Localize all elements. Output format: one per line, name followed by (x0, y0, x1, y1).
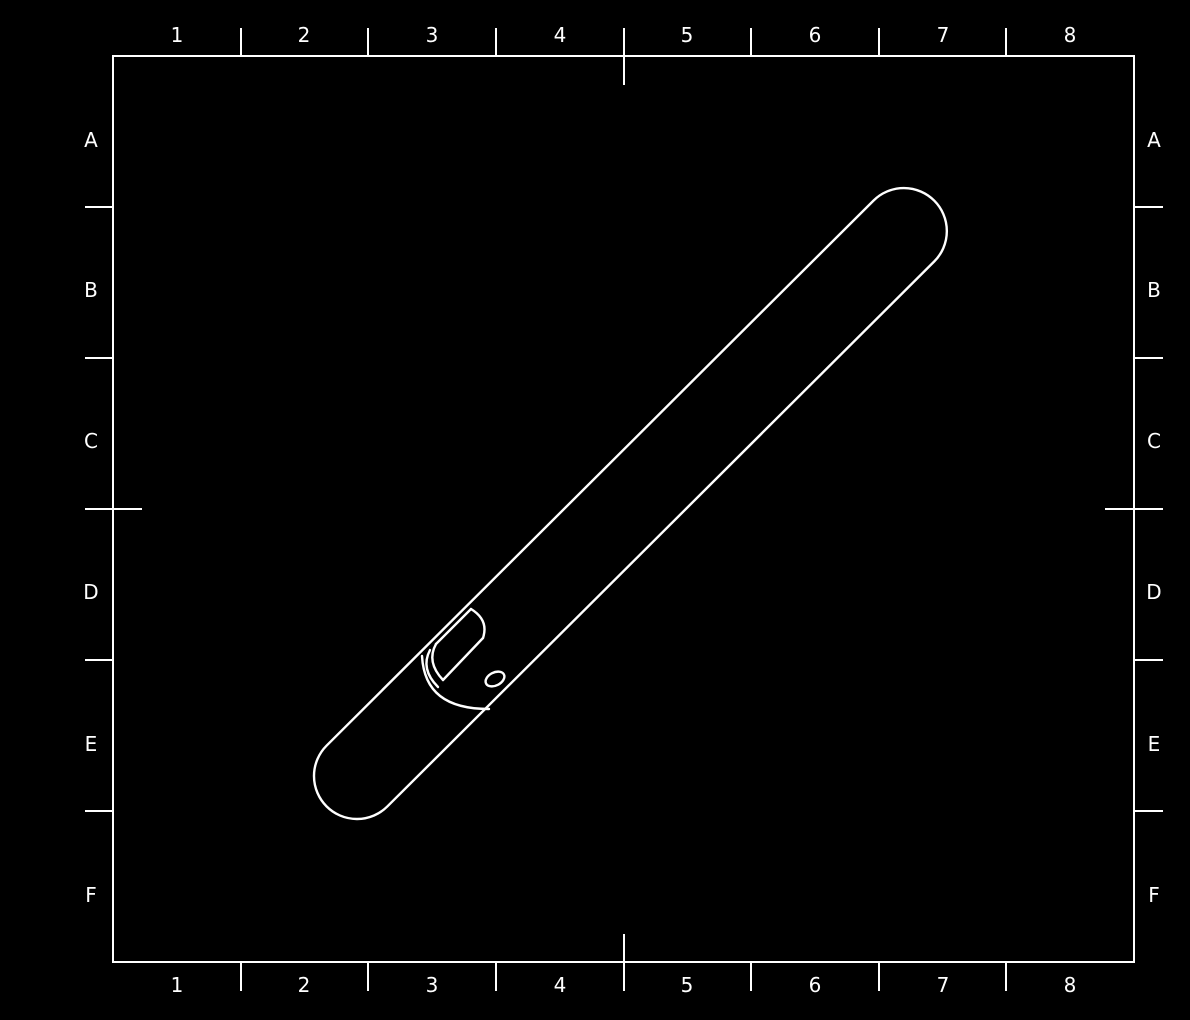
top-column-label: 6 (809, 23, 822, 47)
bottom-column-label: 5 (681, 973, 694, 997)
top-column-label: 7 (937, 23, 950, 47)
right-row-label: B (1147, 278, 1161, 302)
top-column-label: 2 (298, 23, 311, 47)
bottom-column-label: 3 (426, 973, 439, 997)
slot-end-inner-arc (432, 644, 443, 680)
right-row-label: C (1147, 429, 1161, 453)
left-row-label: A (84, 128, 98, 152)
left-row-label: D (83, 580, 98, 604)
zone-labels: 1 2 3 4 5 6 7 8 1 2 3 4 5 6 7 8 A B C D … (83, 23, 1161, 997)
hole (483, 669, 507, 690)
bottom-column-label: 1 (171, 973, 184, 997)
bottom-column-label: 6 (809, 973, 822, 997)
part-wireframe (296, 170, 964, 837)
top-column-label: 5 (681, 23, 694, 47)
left-row-label: C (84, 429, 98, 453)
top-column-label: 3 (426, 23, 439, 47)
cad-drawing-viewport[interactable]: 1 2 3 4 5 6 7 8 1 2 3 4 5 6 7 8 A B C D … (0, 0, 1190, 1020)
top-column-label: 8 (1064, 23, 1077, 47)
bottom-column-label: 7 (937, 973, 950, 997)
zone-tick-marks (85, 28, 1163, 991)
right-row-label: F (1148, 883, 1160, 907)
top-column-label: 1 (171, 23, 184, 47)
right-row-label: E (1148, 732, 1161, 756)
left-row-label: F (85, 883, 97, 907)
left-row-label: E (85, 732, 98, 756)
slot-bottom-edge (443, 638, 483, 680)
top-column-label: 4 (554, 23, 567, 47)
drawing-border (113, 56, 1134, 962)
slot-top-edge (436, 609, 471, 644)
rod-outline (296, 170, 964, 837)
slot-right-edge (471, 609, 485, 638)
left-row-label: B (84, 278, 98, 302)
bottom-column-label: 4 (554, 973, 567, 997)
bottom-column-label: 2 (298, 973, 311, 997)
bottom-column-label: 8 (1064, 973, 1077, 997)
right-row-label: D (1146, 580, 1161, 604)
drawing-sheet: 1 2 3 4 5 6 7 8 1 2 3 4 5 6 7 8 A B C D … (0, 0, 1190, 1020)
right-row-label: A (1147, 128, 1161, 152)
